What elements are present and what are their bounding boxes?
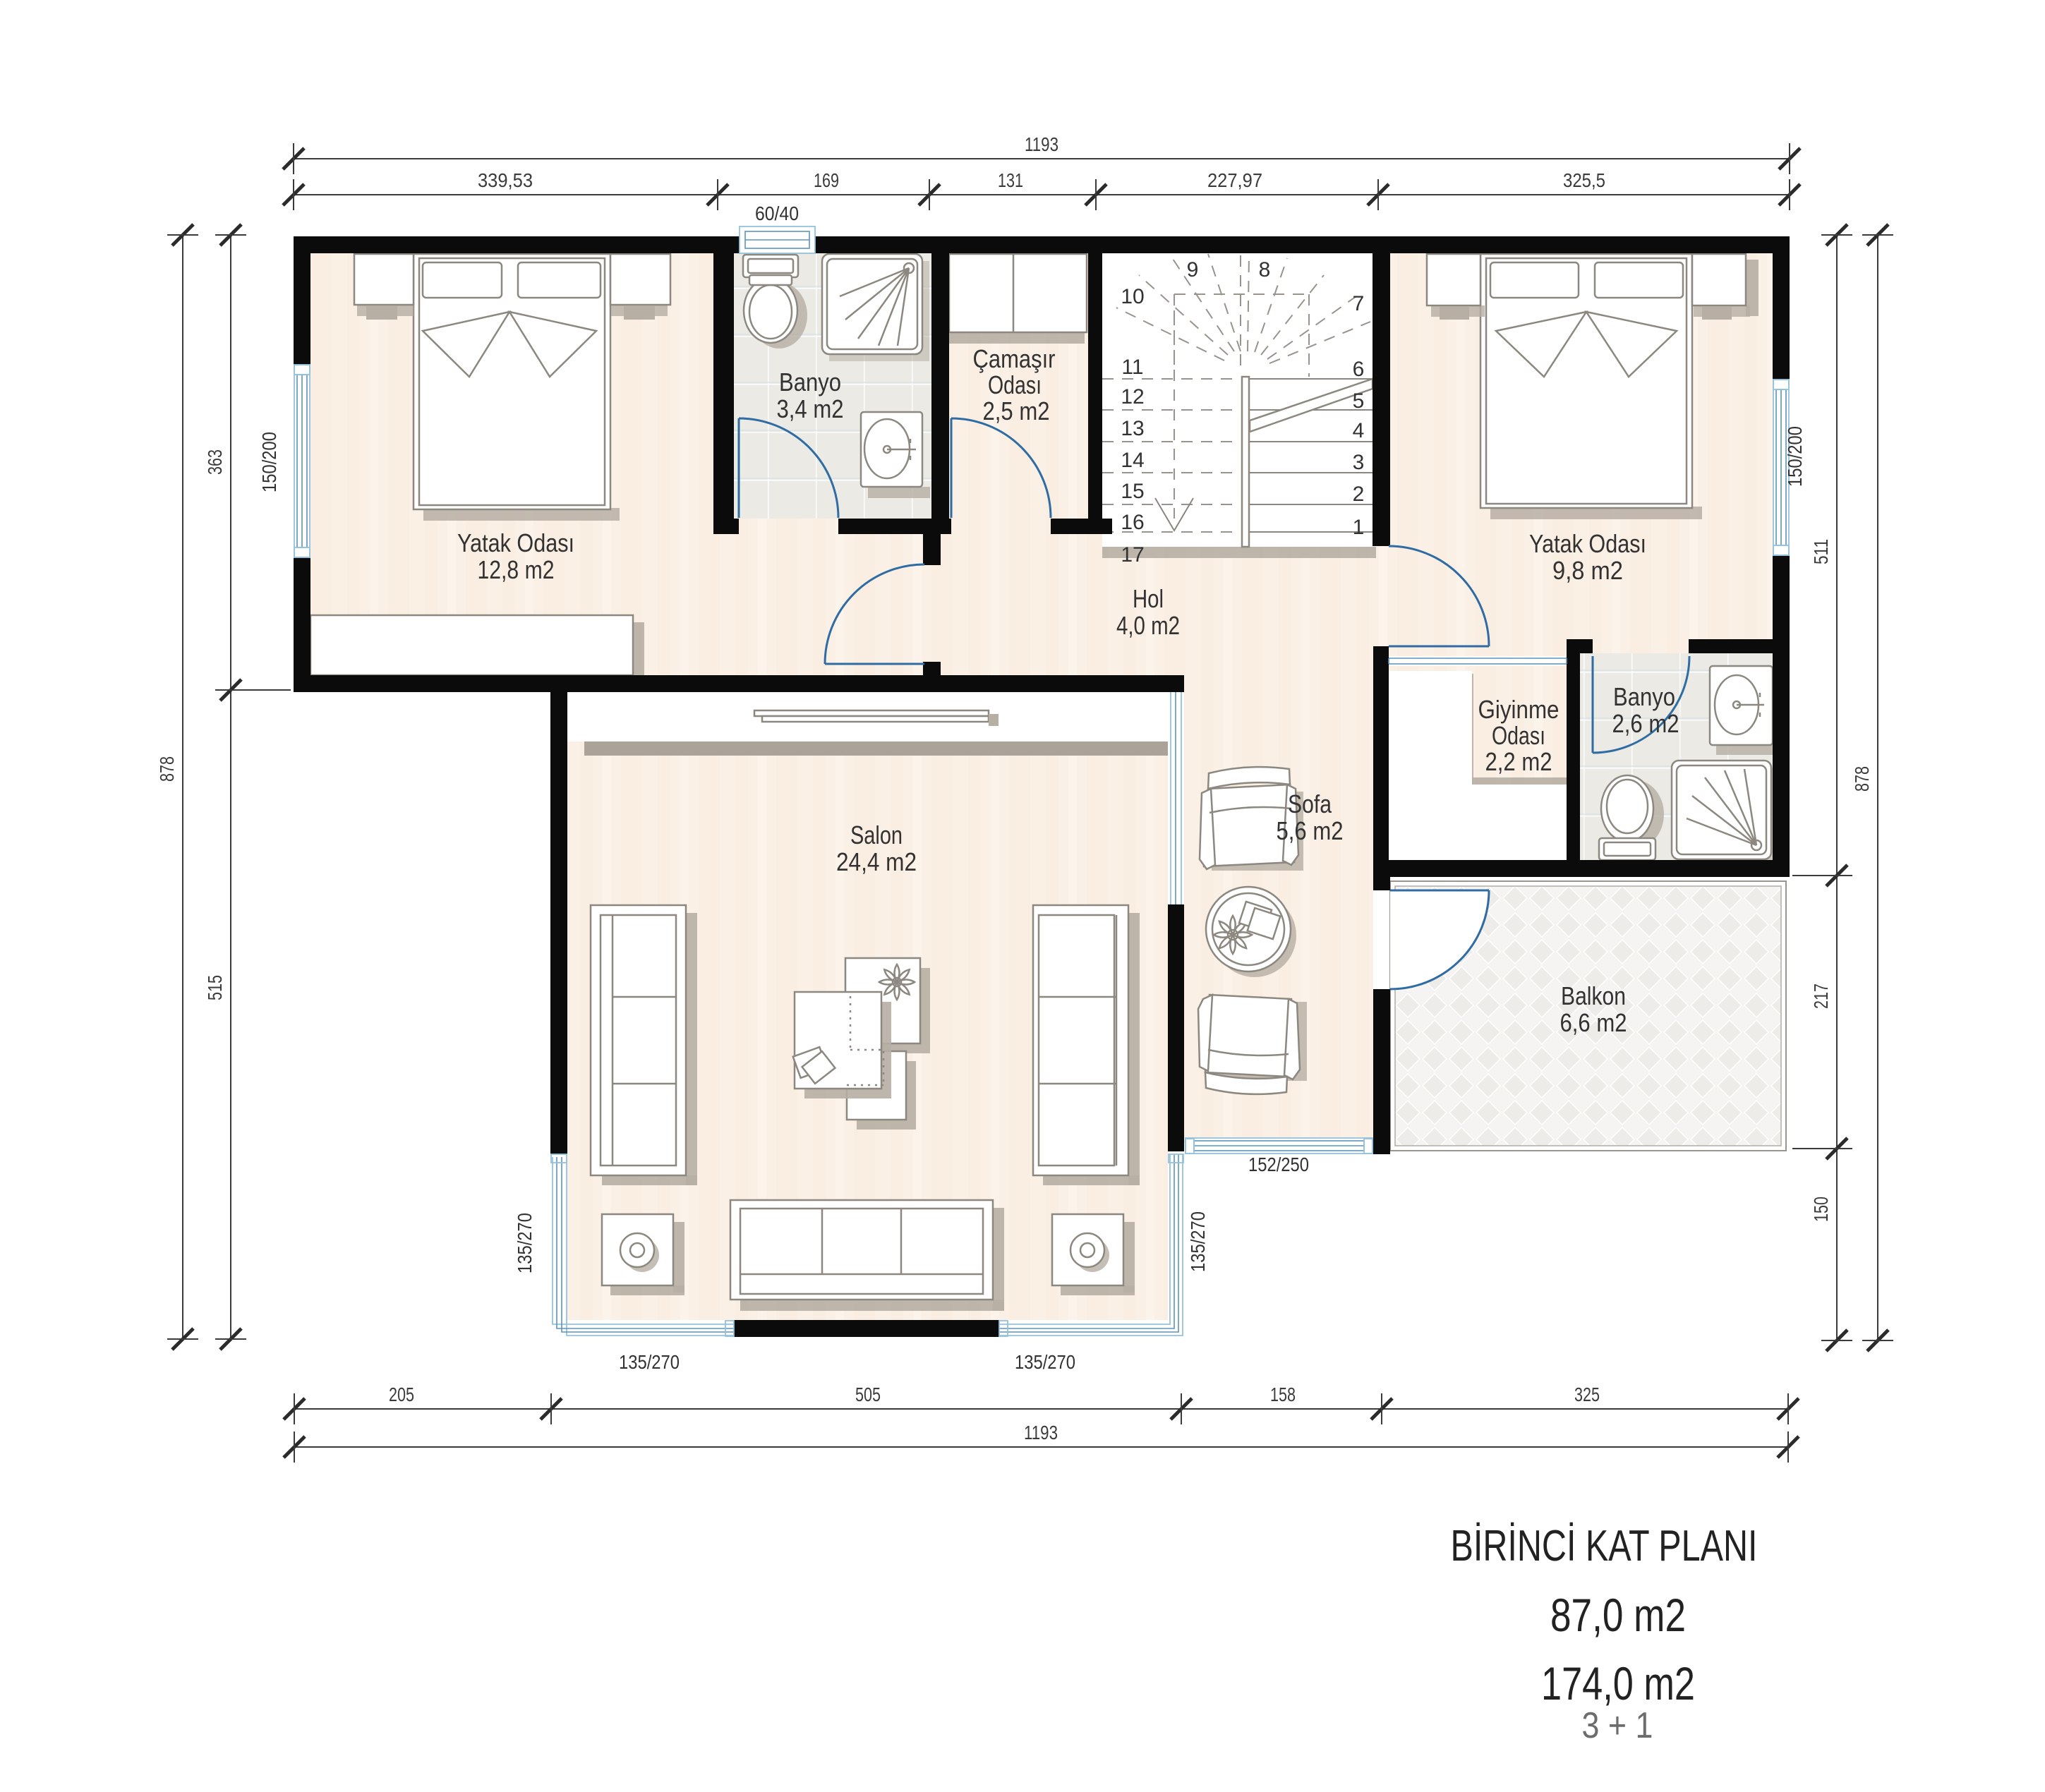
svg-text:2: 2 (1353, 483, 1365, 506)
svg-text:6: 6 (1353, 358, 1365, 381)
svg-text:131: 131 (998, 169, 1023, 191)
svg-text:339,53: 339,53 (478, 169, 533, 191)
svg-text:13: 13 (1121, 417, 1144, 440)
svg-text:227,97: 227,97 (1207, 169, 1262, 191)
svg-text:Çamaşır: Çamaşır (973, 344, 1056, 373)
svg-text:3: 3 (1353, 451, 1365, 474)
svg-text:9,8 m2: 9,8 m2 (1552, 556, 1623, 585)
svg-text:135/270: 135/270 (1187, 1211, 1209, 1272)
svg-text:Salon: Salon (850, 821, 903, 849)
svg-text:217: 217 (1810, 983, 1832, 1009)
svg-text:3 + 1: 3 + 1 (1582, 1705, 1653, 1746)
svg-text:5: 5 (1353, 389, 1365, 413)
svg-text:152/250: 152/250 (1248, 1154, 1309, 1175)
svg-text:16: 16 (1121, 511, 1144, 534)
svg-text:Balkon: Balkon (1561, 981, 1626, 1010)
svg-text:8: 8 (1259, 258, 1271, 281)
svg-text:174,0 m2: 174,0 m2 (1541, 1657, 1695, 1709)
svg-text:1193: 1193 (1024, 1422, 1058, 1443)
svg-text:878: 878 (156, 756, 178, 782)
svg-text:17: 17 (1121, 543, 1144, 567)
svg-text:Hol: Hol (1133, 584, 1164, 613)
svg-text:9: 9 (1187, 258, 1199, 281)
svg-text:325,5: 325,5 (1563, 169, 1605, 191)
svg-text:Sofa: Sofa (1288, 789, 1332, 818)
svg-text:205: 205 (389, 1384, 414, 1405)
svg-text:169: 169 (814, 169, 839, 191)
svg-text:Odası: Odası (988, 370, 1042, 399)
svg-text:505: 505 (855, 1384, 881, 1405)
svg-text:150: 150 (1810, 1197, 1832, 1222)
svg-text:2,2 m2: 2,2 m2 (1485, 747, 1552, 776)
svg-text:511: 511 (1810, 539, 1832, 564)
svg-text:2,5 m2: 2,5 m2 (983, 396, 1050, 425)
svg-text:158: 158 (1270, 1384, 1296, 1405)
svg-text:135/270: 135/270 (514, 1213, 536, 1273)
svg-text:10: 10 (1121, 285, 1144, 308)
svg-text:Yatak Odası: Yatak Odası (1529, 529, 1646, 558)
svg-text:135/270: 135/270 (619, 1351, 680, 1373)
svg-text:24,4 m2: 24,4 m2 (836, 847, 917, 876)
svg-text:3,4 m2: 3,4 m2 (777, 394, 844, 423)
svg-text:150/200: 150/200 (258, 432, 280, 492)
svg-text:2,6 m2: 2,6 m2 (1612, 709, 1679, 738)
svg-text:14: 14 (1121, 449, 1144, 472)
svg-text:1: 1 (1353, 516, 1365, 539)
svg-text:Banyo: Banyo (779, 368, 841, 396)
svg-text:12,8 m2: 12,8 m2 (478, 555, 555, 584)
svg-text:5,6 m2: 5,6 m2 (1277, 816, 1344, 845)
svg-text:60/40: 60/40 (755, 202, 799, 224)
svg-text:363: 363 (204, 449, 226, 475)
svg-text:87,0 m2: 87,0 m2 (1550, 1589, 1686, 1641)
svg-text:4,0 m2: 4,0 m2 (1116, 611, 1180, 640)
svg-text:6,6 m2: 6,6 m2 (1560, 1008, 1627, 1037)
svg-text:BİRİNCİ KAT PLANI: BİRİNCİ KAT PLANI (1451, 1522, 1758, 1570)
svg-text:11: 11 (1121, 356, 1143, 379)
svg-text:1193: 1193 (1025, 133, 1058, 155)
svg-text:4: 4 (1353, 419, 1365, 442)
svg-text:135/270: 135/270 (1015, 1351, 1075, 1373)
svg-text:325: 325 (1574, 1384, 1600, 1405)
svg-text:878: 878 (1851, 766, 1873, 792)
svg-text:Yatak Odası: Yatak Odası (457, 528, 574, 557)
svg-text:7: 7 (1353, 292, 1365, 315)
svg-text:150/200: 150/200 (1784, 426, 1806, 487)
svg-text:12: 12 (1121, 385, 1144, 408)
svg-text:515: 515 (204, 975, 226, 1000)
svg-text:Odası: Odası (1492, 721, 1545, 750)
svg-text:Giyinme: Giyinme (1478, 695, 1560, 724)
svg-text:Banyo: Banyo (1613, 682, 1675, 711)
svg-text:15: 15 (1121, 480, 1144, 503)
